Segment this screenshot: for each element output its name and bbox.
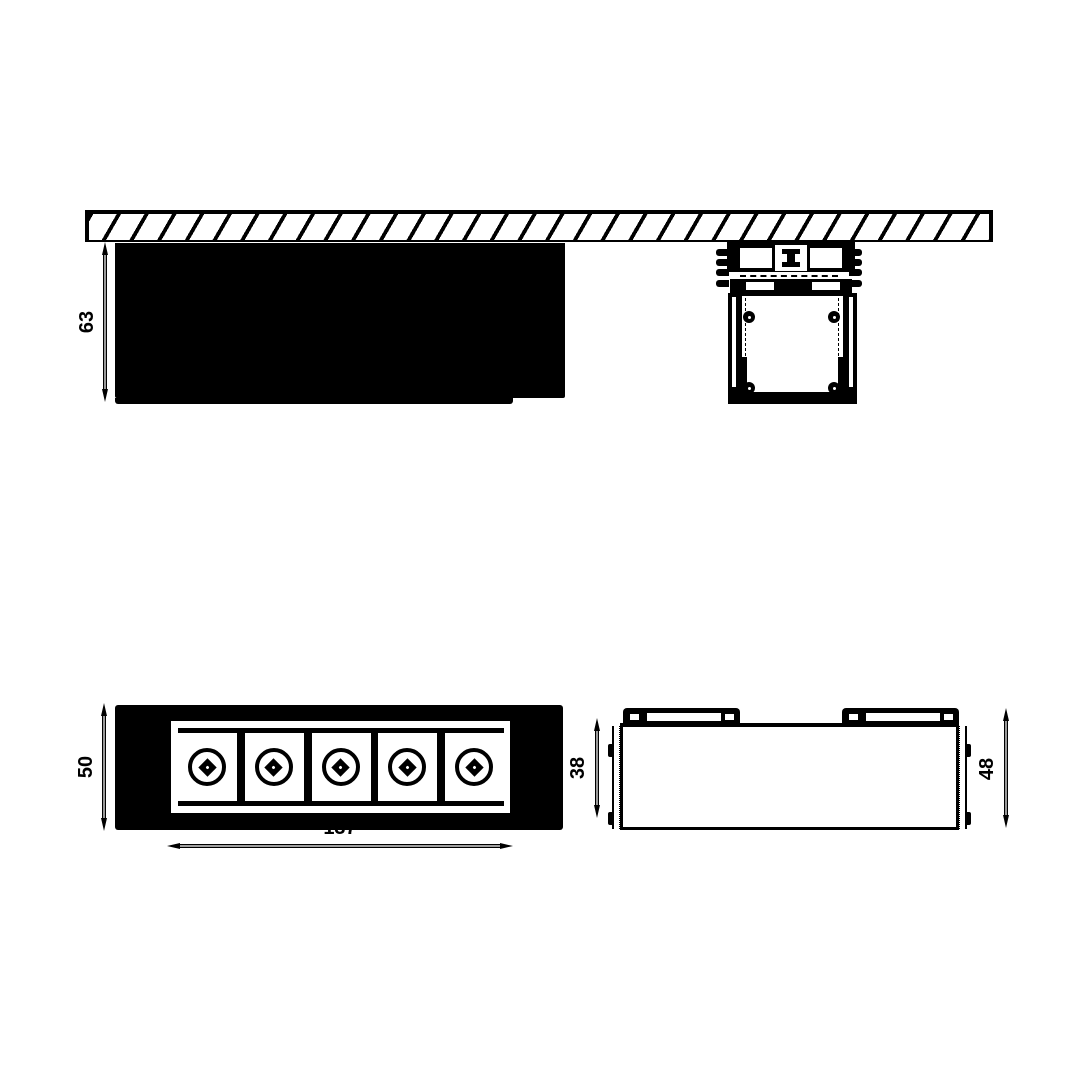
heatsink-fin xyxy=(716,269,729,276)
dimension-arrow-38 xyxy=(589,717,605,819)
fixture-side-silhouette xyxy=(115,243,565,398)
driver-slot-left xyxy=(746,282,774,290)
screw-icon xyxy=(743,382,755,394)
clip-mark xyxy=(630,714,639,720)
side-tab xyxy=(608,744,613,757)
driver-slot-right xyxy=(812,282,840,290)
heatsink-fin xyxy=(716,249,729,256)
clip-slot xyxy=(647,713,721,721)
led-chip-icon xyxy=(265,758,283,776)
bracket-window-right xyxy=(810,248,842,268)
led-chip-icon xyxy=(465,758,483,776)
end-cap-left xyxy=(612,726,620,829)
clip-mark xyxy=(944,714,953,720)
led-cell xyxy=(245,733,304,801)
fixture-trim-lip xyxy=(115,398,513,404)
wall-groove-right xyxy=(849,297,853,387)
dimension-label-fixture-depth: 63 xyxy=(76,297,98,347)
led-dot-icon xyxy=(205,765,210,770)
led-dot-icon xyxy=(405,765,410,770)
ibeam-bottom xyxy=(782,262,800,267)
hidden-edge-dashed-line xyxy=(740,275,838,277)
led-ring-icon xyxy=(322,748,360,786)
mount-clip-right xyxy=(842,708,959,725)
housing-top-edge xyxy=(742,293,843,296)
dimension-arrow-50 xyxy=(96,702,112,832)
bracket-window-left xyxy=(740,248,772,268)
led-ring-icon xyxy=(455,748,493,786)
side-tab xyxy=(608,812,613,825)
dimension-label-side-inner-height: 38 xyxy=(567,743,589,793)
side-view-body xyxy=(620,723,959,830)
led-ring-icon xyxy=(255,748,293,786)
heatsink-fin xyxy=(849,259,862,266)
heatsink-fin xyxy=(716,259,729,266)
led-cells-row xyxy=(178,728,504,806)
led-ring-icon xyxy=(188,748,226,786)
screw-icon xyxy=(743,311,755,323)
side-tab xyxy=(966,812,971,825)
dimension-label-front-width: 137 xyxy=(290,817,390,839)
dimension-label-side-overall-height: 48 xyxy=(976,744,998,794)
heatsink-fin xyxy=(849,249,862,256)
wall-groove-left xyxy=(732,297,736,387)
led-ring-icon xyxy=(388,748,426,786)
led-dot-icon xyxy=(472,765,477,770)
mount-clip-left xyxy=(623,708,740,725)
ceiling-hatch-band xyxy=(85,210,993,242)
side-tab xyxy=(966,744,971,757)
led-chip-icon xyxy=(398,758,416,776)
clip-mark xyxy=(849,714,858,720)
dimension-arrow-48 xyxy=(998,707,1014,829)
led-dot-icon xyxy=(338,765,343,770)
dimension-label-front-height: 50 xyxy=(75,742,97,792)
dimension-arrow-63 xyxy=(97,241,113,403)
heatsink-fin xyxy=(716,280,729,287)
led-cell xyxy=(178,733,237,801)
heatsink-fin xyxy=(849,269,862,276)
clip-mark xyxy=(725,714,734,720)
led-cell xyxy=(378,733,437,801)
led-dot-icon xyxy=(271,765,276,770)
led-chip-icon xyxy=(331,758,349,776)
clip-slot xyxy=(866,713,940,721)
led-chip-icon xyxy=(198,758,216,776)
led-cell xyxy=(445,733,504,801)
screw-icon xyxy=(828,382,840,394)
dimension-arrow-137 xyxy=(166,838,514,854)
mount-cross-section xyxy=(716,242,862,404)
screw-icon xyxy=(828,311,840,323)
luminaire-technical-drawing: 63 xyxy=(0,0,1080,1080)
led-cell xyxy=(312,733,371,801)
